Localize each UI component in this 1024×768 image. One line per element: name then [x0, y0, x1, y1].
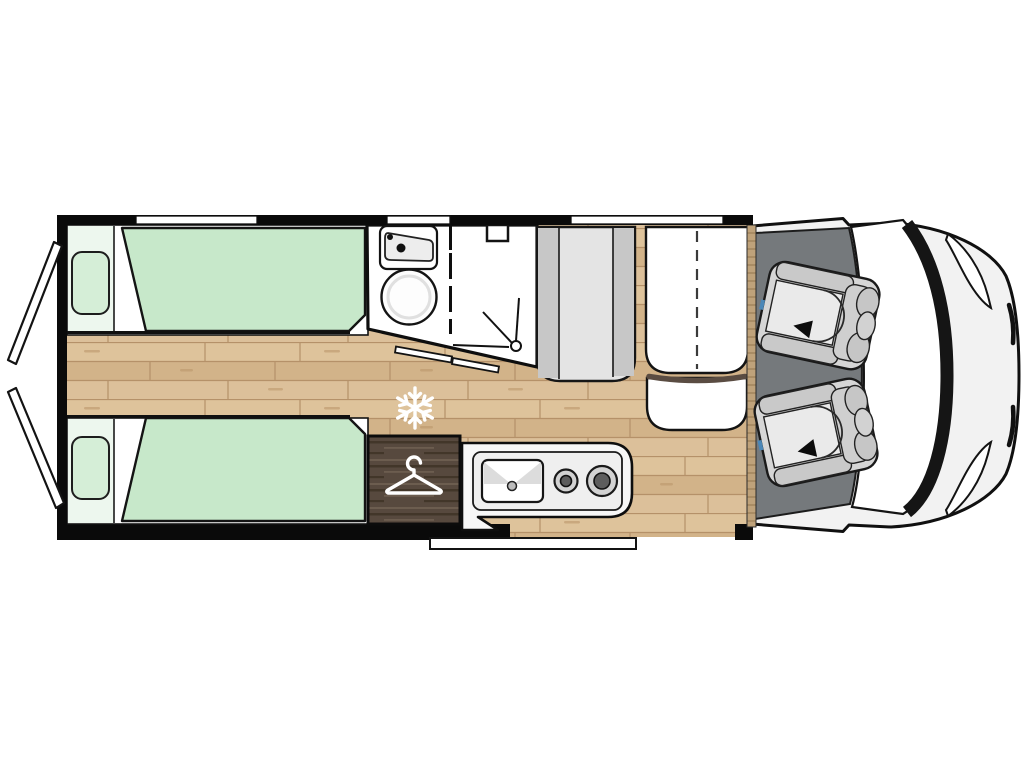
rear-doors	[8, 242, 64, 508]
window-dinette	[571, 216, 723, 224]
kitchen	[462, 443, 632, 530]
roof-vent-icon	[487, 225, 508, 241]
entry-step-bar	[430, 538, 636, 549]
rear-door-panel-top	[8, 242, 62, 364]
motorhome-floorplan	[0, 0, 1024, 768]
wardrobe	[368, 436, 460, 524]
floor-entry-threshold	[510, 524, 737, 537]
sink-drain	[508, 482, 517, 491]
toilet-bowl-icon	[382, 270, 437, 325]
wardrobe-cabinet	[368, 436, 460, 524]
faucet-dot-small	[387, 234, 393, 240]
pillow-bottom-bed	[72, 437, 109, 499]
pillow-top-bed	[72, 252, 109, 314]
window-bathroom	[387, 216, 450, 224]
faucet-dot-large	[397, 244, 406, 253]
cab	[747, 219, 1019, 532]
mattress-bottom-bed	[122, 418, 365, 521]
mattress-top-bed	[122, 228, 365, 331]
window-bedroom	[136, 216, 257, 224]
bench-bolster-right	[613, 228, 634, 376]
bench-bolster-left	[538, 228, 559, 378]
burner-small-center	[561, 476, 572, 487]
burner-large-center	[594, 473, 610, 489]
floorplan-page	[0, 0, 1024, 768]
rear-door-panel-bottom	[8, 388, 64, 508]
stool-seat	[647, 378, 747, 430]
cab-threshold-strip	[747, 225, 756, 527]
